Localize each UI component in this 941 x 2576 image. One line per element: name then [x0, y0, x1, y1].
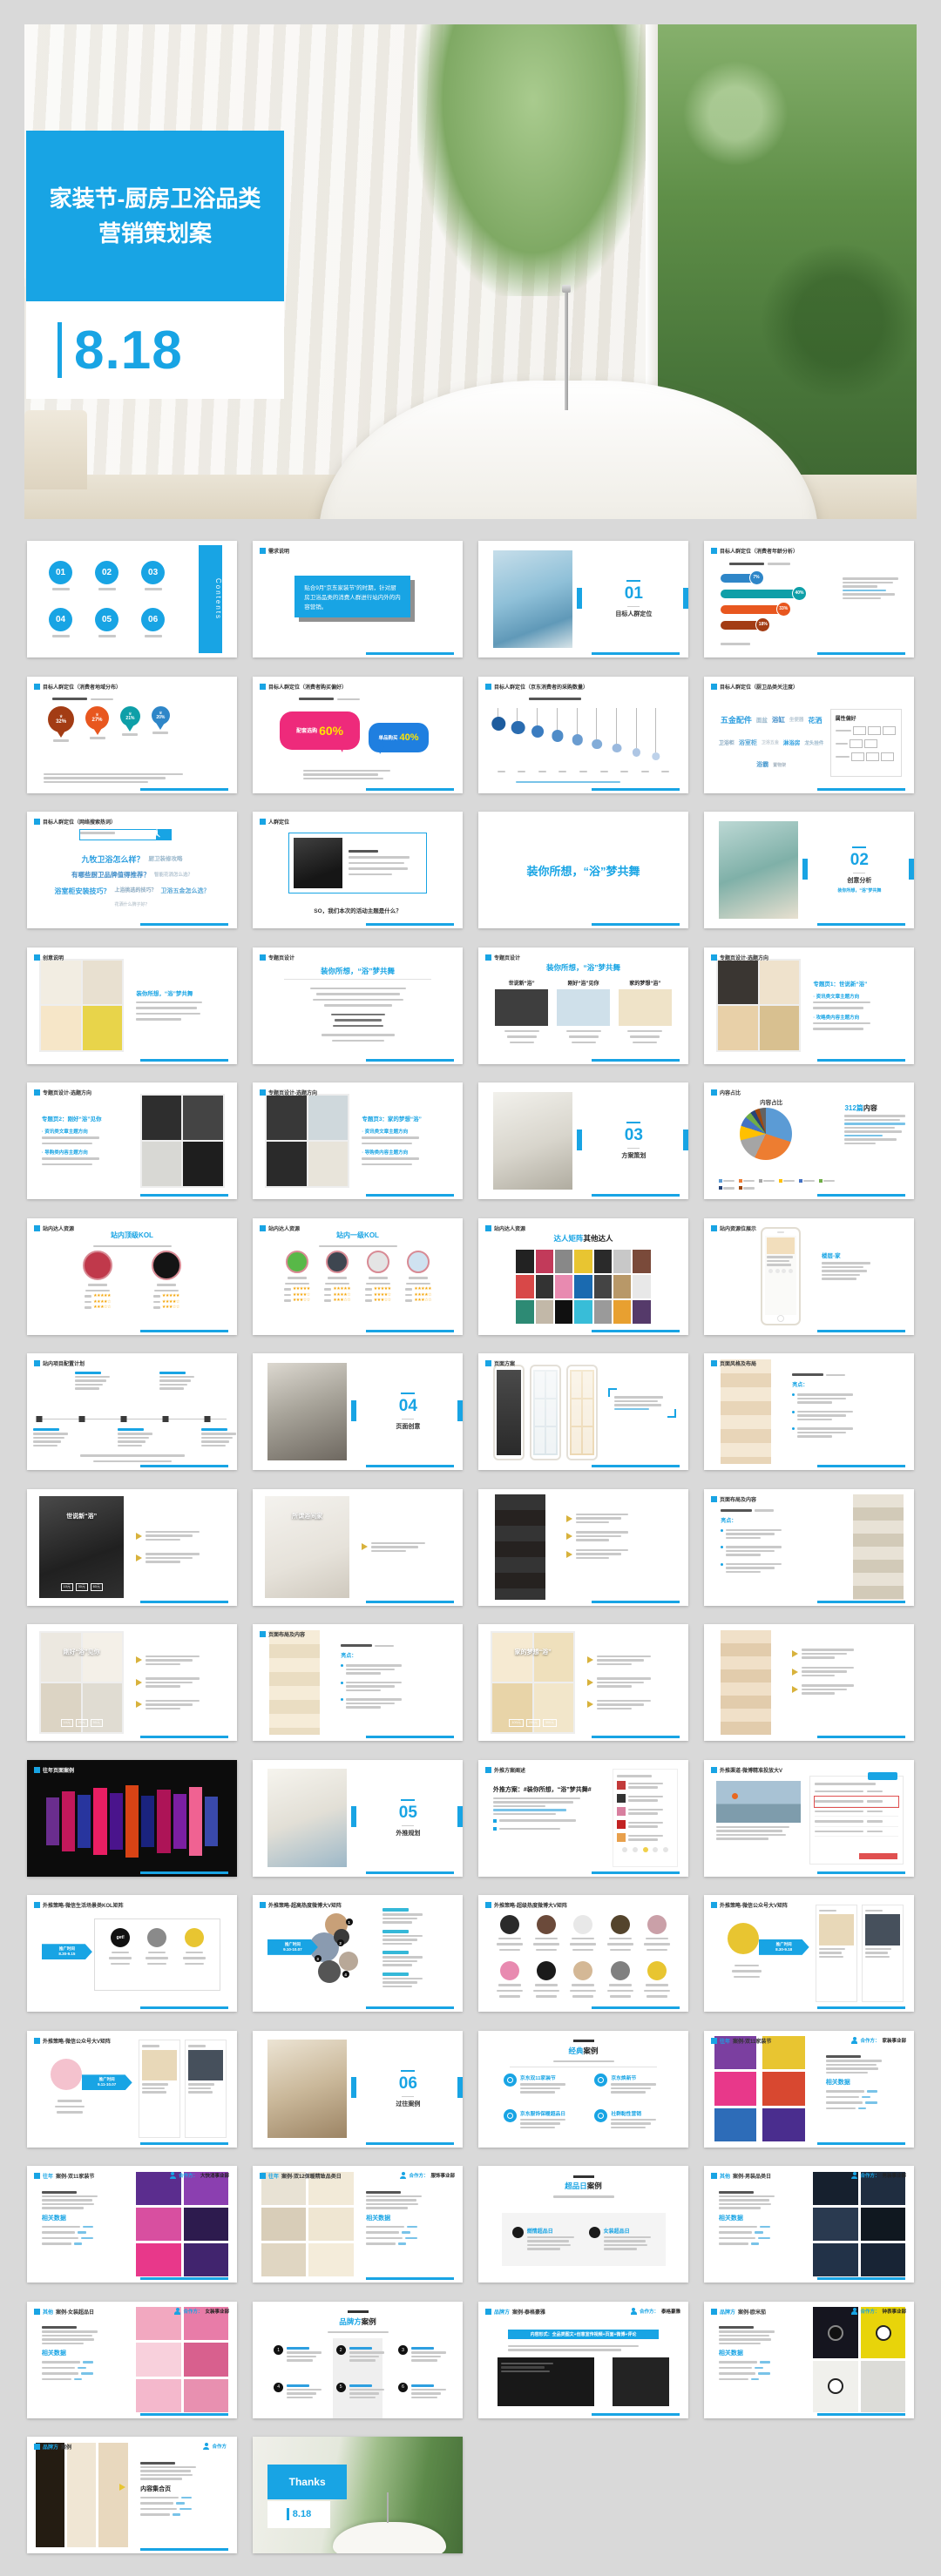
- slide-thumbnail-4[interactable]: 目标人群定位（消费者年龄分析）7%40%33%18%: [704, 541, 914, 657]
- slide-accent-underline: [817, 652, 905, 655]
- decor: [555, 1275, 572, 1298]
- decor: 站内达人资源: [268, 1224, 300, 1232]
- slide-thumbnail-9[interactable]: 目标人群定位（网络搜索热词）九牧卫浴怎么样？厨卫装修攻略有哪些厨卫品牌值得推荐？…: [27, 812, 237, 928]
- slide-thumbnail-49[interactable]: 往年案例-双11家装节合作方：大快消事业部相关数据: [27, 2166, 237, 2283]
- arrow-icon: [587, 1656, 593, 1663]
- decor: [836, 756, 850, 759]
- case-collage: [813, 2307, 905, 2412]
- decor: [553, 2195, 614, 2198]
- decor: [719, 2378, 748, 2381]
- decor: ♛20%: [152, 706, 170, 736]
- section-title-block: 03方案策划: [587, 1082, 680, 1199]
- decor: [815, 1790, 863, 1793]
- decor: [42, 2191, 77, 2194]
- slide-thumbnail-47[interactable]: 经典案例京东双11家装节京东焕新节京东服饰保暖超品日社群黏性营销: [478, 2031, 688, 2148]
- decor: 往年: [43, 2172, 53, 2180]
- decor: [537, 1961, 556, 1980]
- decor: [201, 1445, 226, 1447]
- decor: [52, 698, 87, 700]
- decor: [570, 1990, 596, 1993]
- decor: 外推策略-超级热度微博大V矩阵: [494, 1901, 567, 1909]
- decor: 京东双11家装节: [520, 2074, 565, 2102]
- decor: [362, 1163, 412, 1166]
- slide-thumbnail-14[interactable]: 专题页设计装你所想，“浴”梦共舞: [253, 947, 463, 1064]
- decor: [146, 1656, 200, 1658]
- section-title-block: 01目标人群定位: [587, 541, 680, 657]
- decor: [349, 873, 392, 876]
- page-theme-label: 刚好“浴”见你: [39, 1648, 123, 1656]
- decor: 60%: [319, 724, 343, 738]
- slide-accent-underline: [140, 1465, 228, 1467]
- decor: [611, 2127, 646, 2129]
- decor: [587, 1698, 680, 1712]
- slide-thumbnail-21[interactable]: 站内达人资源站内顶级KOL★★★★★★★★★☆★★★☆☆★★★★★★★★★☆★★…: [27, 1218, 237, 1335]
- decor: 外推策略-超高热度微博大V矩阵: [268, 1901, 342, 1909]
- decor: [80, 1454, 185, 1457]
- slide-thumbnail-45[interactable]: 外推策略-微信公众号大V矩阵推广时间9.11-10.07: [27, 2031, 237, 2148]
- decor: [154, 1290, 179, 1292]
- decor: [853, 873, 865, 873]
- slide-thumbnail-57[interactable]: 品牌方案例合作方内容集合页: [27, 2437, 237, 2553]
- decor: [633, 1275, 650, 1298]
- decor: [557, 708, 558, 731]
- slide-thumbnail-19[interactable]: 03方案策划: [478, 1082, 688, 1199]
- decor: [628, 1794, 663, 1804]
- arrow-icon: [566, 1515, 572, 1522]
- decor: [797, 1398, 846, 1400]
- decor: [146, 1677, 200, 1680]
- decor: [714, 2108, 756, 2141]
- decor: [843, 590, 886, 592]
- decor: 案例: [362, 2317, 376, 2326]
- header-chip-icon: [485, 1225, 491, 1231]
- decor: [644, 1943, 670, 1945]
- resource-title: 楼层-家: [822, 1251, 897, 1259]
- decor: 其他达人: [584, 1234, 613, 1243]
- decor: [184, 2343, 229, 2376]
- slide-header: 站内资源位展示: [711, 1224, 756, 1232]
- slide-thumbnail-44[interactable]: 外推策略-微信公众号大V矩阵推广时间8.30-9.18: [704, 1895, 914, 2012]
- decor: [843, 593, 895, 596]
- decor: 相关数据: [719, 2189, 807, 2247]
- decor: [620, 771, 628, 773]
- decor: [46, 1797, 59, 1844]
- decor: [641, 771, 649, 773]
- decor: [802, 1667, 854, 1669]
- slide-thumbnail-37[interactable]: 往年页面案例: [27, 1760, 237, 1877]
- decor: [109, 1957, 132, 1959]
- key-message-box: 贴合9月“京东家装节”的时期，针对厨房卫浴品类的消费人群进行站内外的内容营销。: [294, 576, 410, 617]
- decor: [493, 1826, 599, 1832]
- decor: [493, 1365, 525, 1460]
- decor: [868, 1772, 897, 1780]
- decor: ★★★★☆: [374, 1292, 391, 1298]
- decor: [683, 1130, 688, 1150]
- partner-chip: 合作方：服饰事业部: [400, 2172, 455, 2179]
- decor: [42, 1163, 92, 1166]
- decor: [626, 1122, 640, 1123]
- case-screenshot: [498, 2357, 594, 2406]
- decor: [498, 1984, 521, 1986]
- cloud-word: 上浴挑选的技巧？: [114, 888, 156, 894]
- slide-thumbnail-50[interactable]: 往年案例-双12保暖精致品类日合作方：服饰事业部相关数据: [253, 2166, 463, 2283]
- decor: [867, 1811, 883, 1813]
- decor: [140, 2466, 196, 2469]
- decor: [44, 773, 183, 776]
- slide-header: 目标人群定位（消费者年龄分析）: [711, 547, 798, 555]
- decor: [751, 2378, 759, 2381]
- kol-avatar-cluster: 1234: [308, 1913, 372, 1995]
- cover-date-text: 8.18: [74, 320, 183, 381]
- person-icon: [631, 2308, 637, 2315]
- slide-header: 外推策略-微信生活场景类KOL矩阵: [34, 1901, 124, 1909]
- decor: [493, 1827, 497, 1831]
- decor: 外推渠道-微博精准投放大V: [720, 1766, 782, 1774]
- decor: [813, 1007, 863, 1009]
- decor: [536, 1275, 553, 1298]
- contents-item: 06: [130, 608, 176, 637]
- slide-thumbnail-20[interactable]: 内容占比内容占比312篇内容: [704, 1082, 914, 1199]
- slide-thumbnail-51[interactable]: 超品日案例燃情超品日女装超品日: [478, 2166, 688, 2283]
- decor: [493, 1817, 599, 1824]
- slide-thumbnail-11[interactable]: 装你所想，“浴”梦共舞: [478, 812, 688, 928]
- decor: [797, 1432, 846, 1434]
- decor: [411, 2397, 437, 2399]
- slide-thumbnail-28[interactable]: 页面风格及布局亮点：: [704, 1353, 914, 1470]
- decor: [553, 2060, 614, 2063]
- decor: 京东焕新节: [611, 2074, 656, 2102]
- decor: [739, 1186, 742, 1190]
- decor: [721, 641, 750, 647]
- decor: [497, 1943, 523, 1945]
- slide-thumbnail-5[interactable]: 目标人群定位（消费者地域分布）♛32%♛27%♛21%♛20%: [27, 677, 237, 793]
- decor: [843, 576, 904, 601]
- slide-thumbnail-33[interactable]: 刚好“浴”见你10元20元50元: [27, 1624, 237, 1741]
- decor: [826, 2090, 864, 2093]
- data-title: 相关数据: [42, 2349, 130, 2357]
- arrow-icon: [566, 1533, 572, 1540]
- slide-thumbnail-18[interactable]: 专题页设计-选题方向专题页3：家的梦想“浴”· 资讯类文章主题方向· 导购类内容…: [253, 1082, 463, 1199]
- slide-thumbnail-25[interactable]: 站内项目配置计划: [27, 1353, 237, 1470]
- decor: [294, 838, 342, 888]
- slide-thumbnail-15[interactable]: 专题页设计装你所想，“浴”梦共舞世说新“浴”刚好“浴”见你家的梦想“浴”: [478, 947, 688, 1064]
- search-input[interactable]: [79, 829, 172, 840]
- decor: [349, 2359, 376, 2362]
- slide-thumbnail-39[interactable]: 外推方案阐述外推方案：#装你所想，“浴”梦共舞#: [478, 1760, 688, 1877]
- contents-grid: 010203040506: [37, 552, 176, 645]
- decor: [140, 2513, 170, 2516]
- decor: [142, 2050, 177, 2081]
- cloud-word: 花洒: [808, 717, 822, 725]
- slide-thumbnail-27[interactable]: 页面方案: [478, 1353, 688, 1470]
- slide-thumbnail-16[interactable]: 专题页设计-选题方向专题页1：世说新“浴”· 资讯类文章主题方向· 攻略类内容主…: [704, 947, 914, 1064]
- decor: 06: [141, 608, 165, 631]
- slide-thumbnail-38[interactable]: 05外推规划: [253, 1760, 463, 1877]
- decor: [85, 1306, 91, 1309]
- decor: ★★★★★: [414, 1286, 431, 1291]
- decor: [611, 2087, 651, 2090]
- section-title-block: 04页面创意: [362, 1353, 454, 1470]
- decor: [185, 2040, 227, 2138]
- decor: [136, 2343, 181, 2376]
- data-title: 内容集合页: [140, 2485, 224, 2493]
- decor: [576, 1549, 628, 1552]
- decor: ♛27%: [85, 706, 109, 730]
- decor: [802, 1653, 847, 1656]
- decor: [136, 1641, 228, 1724]
- decor: [287, 2389, 322, 2391]
- decor: [516, 781, 620, 784]
- decor: [609, 1984, 632, 1986]
- region-pin-chart: ♛32%♛27%♛21%♛20%: [48, 706, 170, 744]
- decor: ★★★★☆: [93, 1299, 111, 1305]
- decor: [732, 1970, 762, 1972]
- header-chip-icon: [34, 2444, 40, 2450]
- decor: 02: [95, 561, 118, 584]
- decor: [118, 1437, 149, 1440]
- decor: ★★★★★★★★★☆★★★☆☆★★★★★★★★★☆★★★☆☆: [44, 1251, 220, 1327]
- cloud-word: 淋浴房: [783, 740, 801, 746]
- promo-period-tag: 推广时间9.11-10.07: [82, 2074, 132, 2090]
- decor: [146, 1529, 200, 1543]
- decor: [284, 1299, 291, 1302]
- slide-thumbnail-10[interactable]: 人群定位SO，我们本次的活动主题是什么？: [253, 812, 463, 928]
- slide-thumbnail-54[interactable]: 品牌方案例123456: [253, 2302, 463, 2418]
- decor: [819, 1910, 836, 1912]
- decor: 京东服饰保暖超品日: [520, 2109, 565, 2138]
- decor: [721, 1527, 826, 1541]
- decor: [402, 1825, 414, 1826]
- decor: [398, 2242, 406, 2245]
- case-collage: [136, 2307, 228, 2412]
- slide-thumbnail-6[interactable]: 目标人群定位（消费者购买偏好）配套选购60%单品购买40%: [253, 677, 463, 793]
- slide-thumbnail-48[interactable]: 往年案例-双11家装节合作方：家装事业部相关数据: [704, 2031, 914, 2148]
- slide-thumbnail-36[interactable]: [704, 1624, 914, 1741]
- kol-avatar: [494, 1961, 525, 1999]
- decor: [83, 1006, 122, 1050]
- decor: [646, 1984, 668, 1986]
- slide-thumbnail-53[interactable]: 其他案例-女装超品日合作方：女装事业部相关数据: [27, 2302, 237, 2418]
- decor: [74, 2378, 82, 2381]
- theme-name: 世说新“浴”: [509, 979, 535, 987]
- slide-thumbnail-55[interactable]: 品牌方案例-泰格豪雅合作方：泰格豪雅内容形式：全品类图文+创意宣传视频+页面+微…: [478, 2302, 688, 2418]
- cloud-word: 置物架: [773, 764, 786, 769]
- header-chip-icon: [34, 1767, 40, 1773]
- header-chip-icon: [260, 819, 266, 825]
- age-bubble-chart: 7%40%33%18%: [721, 571, 834, 637]
- decor: [142, 1142, 181, 1186]
- decor: [74, 2242, 82, 2245]
- header-chip-icon: [711, 1496, 717, 1502]
- decor: [324, 1294, 331, 1297]
- decor: ★★★★☆: [333, 1292, 350, 1298]
- decor: [628, 1835, 663, 1838]
- decor: [349, 2392, 379, 2395]
- decor: [75, 1379, 106, 1382]
- decor: [142, 2045, 159, 2047]
- slide-accent-underline: [140, 923, 228, 926]
- slide-thumbnail-7[interactable]: 目标人群定位（京东消费者的采购数量）: [478, 677, 688, 793]
- price-chips: 100元200元300元: [491, 1719, 574, 1727]
- slide-thumbnail-43[interactable]: 外推策略-超级热度微博大V矩阵: [478, 1895, 688, 2012]
- slide-thumbnail-1[interactable]: 010203040506Contents: [27, 541, 237, 657]
- decor: [362, 1505, 454, 1588]
- decor: [739, 1179, 742, 1183]
- decor: [719, 2199, 769, 2202]
- decor: [844, 1138, 897, 1141]
- framed-image-box: [288, 833, 427, 894]
- header-chip-icon: [260, 954, 266, 961]
- decor: 案例-男装品类日: [733, 2172, 771, 2180]
- slide-thumbnail-12[interactable]: 02创意分析装你所想，“浴”梦共舞: [704, 812, 914, 928]
- slide-accent-underline: [140, 2142, 228, 2145]
- kol-avatar: [494, 1915, 525, 1953]
- slide-accent-underline: [140, 2006, 228, 2009]
- decor: [573, 2040, 594, 2042]
- decor: 案例: [587, 2182, 602, 2190]
- decor: [402, 2231, 410, 2234]
- decor: 33%: [721, 605, 786, 614]
- decor: [836, 743, 848, 745]
- decor: [499, 1828, 560, 1831]
- decor: 8.30-9.15: [58, 1952, 75, 1957]
- slide-thumbnail-29[interactable]: 世说新“浴”10元30元60元: [27, 1489, 237, 1606]
- slide-thumbnail-13[interactable]: 创意说明装你所想，“浴”梦共舞: [27, 947, 237, 1064]
- slide-accent-underline: [592, 1871, 680, 1874]
- slide-thumbnail-42[interactable]: 外推策略-超高热度微博大V矩阵推广时间9.10-10.071234: [253, 1895, 463, 2012]
- weibo-screenshot: [716, 1781, 800, 1842]
- slide-thumbnail-34[interactable]: 页面布局及内容亮点：: [253, 1624, 463, 1741]
- slide-thumbnail-3[interactable]: 01目标人群定位: [478, 541, 688, 657]
- decor: [775, 1269, 780, 1273]
- slide-thumbnail-56[interactable]: 品牌方案例-欧米茄合作方：钟表事业部相关数据: [704, 2302, 914, 2418]
- header-chip-icon: [260, 1902, 266, 1908]
- slide-thumbnail-23[interactable]: 站内达人资源达人矩阵其他达人: [478, 1218, 688, 1335]
- decor: [826, 2064, 877, 2067]
- decor: [366, 2195, 422, 2198]
- decor: [719, 2361, 757, 2364]
- decor: [828, 2325, 843, 2341]
- decor: [91, 698, 113, 701]
- slide-header: 目标人群定位（京东消费者的采购数量）: [485, 683, 588, 691]
- decor: [183, 1957, 206, 1959]
- slide-thumbnail-22[interactable]: 站内达人资源站内一级KOL★★★★★★★★★☆★★★☆☆★★★★★★★★★☆★★…: [253, 1218, 463, 1335]
- decor: [617, 1847, 674, 1852]
- person-icon: [203, 2443, 209, 2450]
- decor: [75, 1387, 99, 1390]
- decor: [185, 1963, 204, 1966]
- slide-thumbnail-35[interactable]: 家的梦想“浴”100元200元300元: [478, 1624, 688, 1741]
- decor: [716, 1781, 800, 1823]
- decor: [407, 2226, 417, 2229]
- decor: 页面风格及布局: [720, 1359, 756, 1367]
- decor: [284, 979, 431, 980]
- slide-thumbnail-58[interactable]: Thanks8.18: [253, 2437, 463, 2553]
- header-chip-icon: [711, 1089, 717, 1096]
- slide-thumbnail-32[interactable]: 页面布局及内容亮点：: [704, 1489, 914, 1606]
- decor: [140, 2508, 177, 2511]
- decor: [572, 1949, 593, 1952]
- slide-thumbnail-46[interactable]: 06过往案例: [253, 2031, 463, 2148]
- decor: [797, 1414, 846, 1417]
- slide-thumbnail-26[interactable]: 04页面创意: [253, 1353, 463, 1470]
- decor: 312篇内容: [844, 1103, 903, 1146]
- slide-title: 达人矩阵其他达人: [478, 1233, 688, 1244]
- decor: [782, 1269, 786, 1273]
- slide-thumbnail-24[interactable]: 站内资源位展示楼层-家: [704, 1218, 914, 1335]
- decor: [37, 1419, 227, 1419]
- decor: [646, 1938, 668, 1940]
- slide-thumbnail-30[interactable]: 所谓浴间家: [253, 1489, 463, 1606]
- slide-accent-underline: [140, 788, 228, 791]
- slide-thumbnail-41[interactable]: 外推策略-微信生活场景类KOL矩阵推广时间8.30-9.15get!: [27, 1895, 237, 2012]
- decor: 目标人群定位（消费者购买偏好）: [268, 683, 347, 691]
- section-photo: [493, 1092, 573, 1190]
- section-subtitle: 装你所想，“浴”梦共舞: [837, 887, 881, 894]
- slide-thumbnail-2[interactable]: 需求说明贴合9月“京东家装节”的时期，针对厨房卫浴品类的消费人群进行站内外的内容…: [253, 541, 463, 657]
- slide-thumbnail-40[interactable]: 外推渠道-微博精准投放大V: [704, 1760, 914, 1877]
- decor: 10元: [61, 1583, 73, 1591]
- decor: 案例: [61, 2443, 71, 2451]
- decor: 目标人群定位（厨卫品类关注度）: [720, 683, 798, 691]
- decor: [406, 1283, 430, 1285]
- decor: [33, 1445, 58, 1447]
- decor: [81, 2237, 93, 2240]
- decor: 4: [342, 1971, 349, 1978]
- decor: [351, 2077, 356, 2098]
- decor: 合作方：: [640, 2308, 659, 2315]
- decor: 相关数据: [719, 2324, 807, 2382]
- decor: [566, 1548, 672, 1561]
- decor: [577, 588, 582, 609]
- decor: [349, 2351, 384, 2354]
- slide-accent-underline: [592, 788, 680, 791]
- slide-thumbnail-8[interactable]: 目标人群定位（厨卫品类关注度）五金配件面盆浴缸坐便器花洒卫浴柜浴室柜卫浴五金淋浴…: [704, 677, 914, 793]
- slide-thumbnail-31[interactable]: [478, 1489, 688, 1606]
- section-title: 过往案例: [396, 2100, 420, 2108]
- decor: [55, 2106, 85, 2108]
- slide-thumbnail-52[interactable]: 其他案例-男装品类日合作方：男装事业部相关数据: [704, 2166, 914, 2283]
- decor: 20元: [76, 1719, 88, 1727]
- decor: [633, 748, 641, 757]
- decor: [324, 1299, 331, 1302]
- decor: [122, 733, 138, 736]
- decor: [555, 1300, 572, 1324]
- slide-thumbnail-17[interactable]: 专题页设计-选题方向专题页2：刚好“浴”见你· 资讯类文章主题方向· 导购类内容…: [27, 1082, 237, 1199]
- decor: [729, 563, 764, 565]
- decor: [93, 1788, 106, 1855]
- decor: [287, 2356, 316, 2358]
- slide-accent-underline: [366, 1465, 454, 1467]
- section-title: 页面创意: [396, 1422, 420, 1431]
- decor: [335, 1019, 382, 1022]
- decor: ★★★☆☆: [414, 1298, 431, 1303]
- decor: [779, 1178, 795, 1184]
- decor: ★★★☆☆: [405, 1298, 431, 1304]
- slide-header: 品牌方案例-欧米茄: [711, 2308, 766, 2316]
- decor: [201, 1440, 229, 1443]
- decor: 页面布局及内容: [268, 1630, 305, 1638]
- decor: [721, 1561, 826, 1575]
- decor: [44, 2098, 96, 2115]
- decor: [628, 1833, 663, 1843]
- decor: [843, 577, 898, 580]
- decor: [146, 1557, 193, 1560]
- decor: [42, 2343, 84, 2345]
- slide-accent-underline: [140, 1194, 228, 1197]
- decor: [617, 1807, 626, 1816]
- article-screenshots: [139, 2040, 227, 2138]
